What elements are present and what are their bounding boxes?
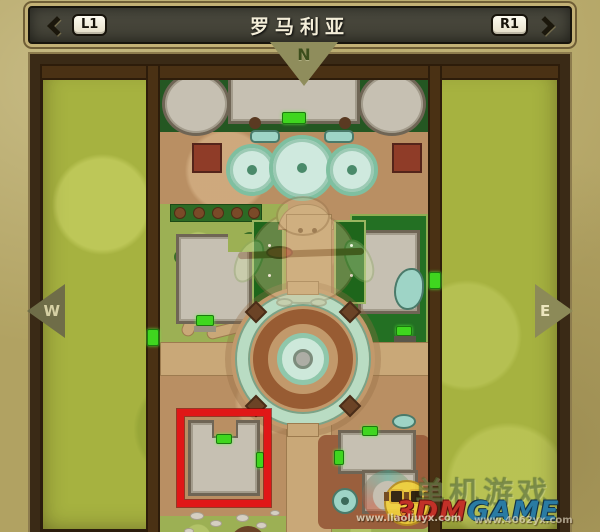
well-center [341,497,349,505]
mascot-red-pod [266,246,293,259]
mascot-foot [276,298,293,307]
west-walk [160,342,242,376]
header-right-group: R1 [491,14,556,36]
castle-planter-right [339,117,351,129]
l1-button[interactable]: L1 [72,14,107,36]
southeast-building-upper [338,430,416,474]
header-left-group: L1 [44,14,107,36]
mascot-foot [310,298,327,307]
castle-west-wing [162,72,230,136]
west-house-step [194,326,216,332]
reflecting-pool-left [250,130,280,143]
flower-bed-west [192,143,222,173]
south-west-lawn [160,516,286,532]
bush [212,207,224,219]
map-viewport [30,54,570,532]
paving-stone [190,512,204,520]
bush [174,207,186,219]
well [332,488,358,514]
fountain-east-spout [347,165,357,175]
west-house-door-marker [196,315,214,326]
east-town-wall [428,64,442,532]
mascot-head [276,196,330,236]
paving-stone [236,514,249,522]
fountain-west-spout [247,165,257,175]
game-screen: L1 罗马利亚 R1 [0,0,600,532]
map-header: L1 罗马利亚 R1 [28,6,572,44]
quest-highlight-box [177,409,271,507]
next-map-chevron-icon[interactable] [536,15,556,35]
fountain-east [326,144,378,196]
paving-stone [270,510,280,516]
bush [193,207,205,219]
castle-planter-left [249,117,261,129]
plaza-fountain-center [293,349,313,369]
southeast-building-side-door-marker [334,450,344,465]
mascot-eye [298,228,303,233]
north-wall [40,64,560,80]
castle-east-wing [358,72,426,136]
plaza-fountain [277,333,329,385]
fountain-center-spout [297,163,307,173]
mascot-watermark [240,198,368,310]
plaza-south-steps [287,423,319,437]
paving-stone [210,520,222,527]
map-title: 罗马利亚 [30,12,570,39]
mascot-eye [312,228,317,233]
southeast-building-top-door-marker [362,426,378,436]
corner-pond [392,414,416,429]
east-wall-gate-marker [429,272,441,289]
east-walk [370,342,430,376]
southeast-building-lower [362,470,418,514]
prev-map-chevron-icon[interactable] [44,15,64,35]
west-wall-gate-marker [147,329,159,346]
east-house-door-marker [396,326,412,336]
r1-button[interactable]: R1 [491,14,528,36]
paving-stone [184,528,194,532]
west-town-wall [146,64,160,532]
castle-entrance-marker [282,112,306,124]
reflecting-pool-right [324,130,354,143]
flower-bed-east [392,143,422,173]
